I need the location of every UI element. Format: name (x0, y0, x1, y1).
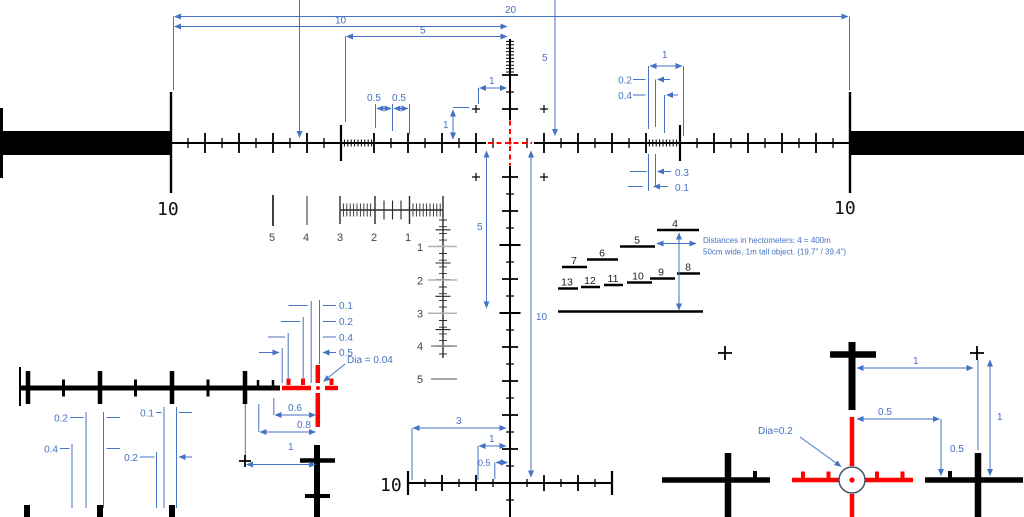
right-post-bar (850, 131, 1024, 155)
center-red-cross (488, 121, 532, 166)
stadia-rangefinder: 4 5 6 7 8 9 10 11 12 13 (558, 218, 703, 312)
dim-02r-label: 0.2 (618, 76, 632, 87)
dim-10-label: 10 (335, 16, 347, 27)
dr-red-dot (849, 477, 854, 482)
dim-ext-lines-top (174, 17, 850, 123)
corner-tick-a (24, 505, 30, 517)
dr-plus-left (718, 346, 732, 360)
step-label-13: 13 (561, 277, 573, 289)
ladder-label-2: 2 (417, 276, 423, 288)
dr-dia-leader (800, 437, 841, 467)
dimension-annotations: 20 10 5 5 0.5 0.5 1 1 1 0.2 0.4 0.3 0.1 … (44, 0, 1003, 508)
dl-red-stems (289, 379, 332, 386)
dr-dim-right1-label: 1 (997, 412, 1003, 423)
dim-1b-label: 1 (489, 434, 495, 445)
dim-1lv-label: 1 (443, 120, 449, 131)
step-label-9: 9 (658, 267, 664, 279)
dr-dia-label: Dia=0.2 (758, 426, 793, 437)
bottom-line-label: 10 (380, 475, 402, 496)
reticle-diagram-svg: 10 10 10 5 4 3 2 1 1 2 3 4 5 (0, 0, 1024, 517)
main-reticle: 10 10 10 (0, 39, 1024, 517)
dim-5up-label: 5 (542, 53, 548, 64)
left-post-bar (0, 131, 171, 155)
step-label-12: 12 (584, 275, 596, 287)
dl-dim-06-label: 0.6 (288, 403, 302, 414)
dr-dim-05h-label: 0.5 (878, 407, 892, 418)
step-label-7: 7 (571, 255, 577, 267)
rf-note-line2: 50cm wide, 1m tall object. (19.7" / 39.4… (703, 248, 846, 257)
dl-offset-02: 0.2 (339, 317, 353, 328)
dim-05b2-label: 0.5 (478, 458, 491, 468)
dl-dia-label: Dia = 0.04 (347, 355, 393, 366)
comb-label-4: 4 (303, 232, 309, 244)
dl-red-dot (316, 386, 320, 390)
dim-20-label: 20 (505, 5, 517, 16)
dr-dim-05v-label: 0.5 (950, 444, 964, 455)
comb-label-2: 2 (371, 232, 377, 244)
dim-1lh-label: 1 (489, 76, 495, 87)
rf-note-line1: Distances in hectometers: 4 = 400m (703, 236, 831, 245)
dim-01r-label: 0.1 (675, 183, 689, 194)
dim-10dn-label: 10 (536, 312, 548, 323)
dl-left-exts (282, 301, 311, 383)
ladder-label-5: 5 (417, 374, 423, 386)
red-center-dot (508, 141, 511, 144)
dl-offset-arrows-left (259, 306, 308, 353)
dl-offset-01: 0.1 (339, 301, 353, 312)
dim-5dn-label: 5 (477, 222, 483, 233)
dim-1r-exts (649, 66, 684, 136)
dr-dim-top1-label: 1 (913, 356, 919, 367)
ladder-label-1: 1 (417, 242, 423, 254)
comb-label-3: 3 (337, 232, 343, 244)
corner-tick-b (97, 505, 103, 517)
dim-3b-label: 3 (456, 416, 462, 427)
step-label-6: 6 (599, 248, 605, 260)
dll-arrows (60, 413, 192, 458)
dl-dia-leader (324, 364, 346, 382)
dim-05b-label: 0.5 (392, 93, 406, 104)
dl-offset-arrows-right (323, 306, 336, 353)
ladder-label-lines-45 (431, 346, 457, 379)
ladder-label-4: 4 (417, 341, 423, 353)
detail-center-left (20, 365, 338, 517)
step-label-10: 10 (632, 271, 644, 283)
dl-plus-mark (239, 455, 251, 467)
dim-03r-label: 0.3 (675, 168, 689, 179)
dl-offset-04: 0.4 (339, 333, 353, 344)
comb-label-5: 5 (269, 232, 275, 244)
dim-05a-label: 0.5 (367, 93, 381, 104)
right-post-label: 10 (834, 198, 856, 219)
step-label-5: 5 (634, 235, 640, 247)
left-edge-tick (0, 108, 3, 178)
dim-04r-label: 0.4 (618, 91, 632, 102)
step-label-4: 4 (672, 218, 678, 230)
dim-below-exts (649, 154, 656, 191)
left-post-label: 10 (157, 199, 179, 220)
dr-plus-right (970, 346, 984, 360)
comb-label-1: 1 (405, 232, 411, 244)
corner-tick-c (169, 505, 175, 517)
dl-dim-1-label: 1 (288, 442, 294, 453)
dll-02a-label: 0.2 (54, 414, 68, 425)
dim-5-label: 5 (420, 26, 426, 37)
reticle-dimension-drawing: 10 10 10 5 4 3 2 1 1 2 3 4 5 (0, 0, 1024, 517)
dim-1r-label: 1 (662, 50, 668, 61)
dll-04-label: 0.4 (44, 445, 58, 456)
step-label-11: 11 (608, 273, 619, 285)
ladder-label-3: 3 (417, 309, 423, 321)
dl-dim-08-label: 0.8 (297, 420, 311, 431)
ladder-narrow-ticks (439, 220, 447, 354)
dll-01-label: 0.1 (140, 409, 154, 420)
step-label-8: 8 (685, 262, 691, 274)
dll-02b-label: 0.2 (124, 453, 138, 464)
